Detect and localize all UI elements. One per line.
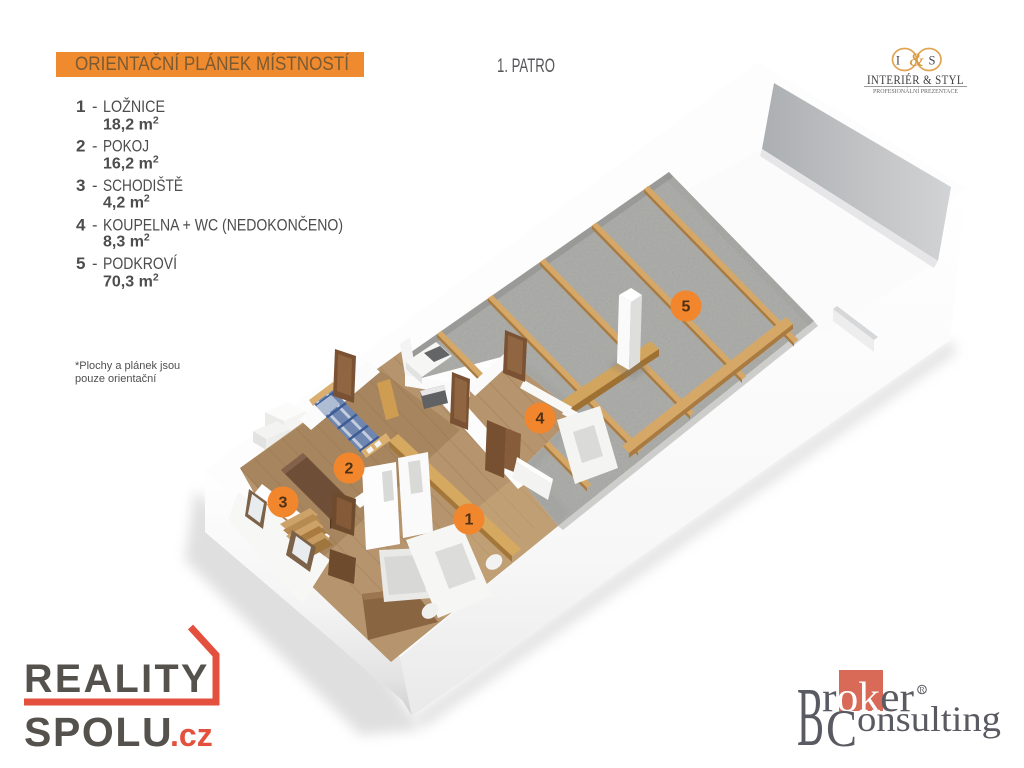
svg-text:-: - (92, 138, 98, 156)
svg-text:2: 2 (76, 137, 85, 156)
svg-text:-: - (92, 255, 98, 273)
svg-text:70,3 m2: 70,3 m2 (103, 272, 159, 291)
svg-text:PODKROVÍ: PODKROVÍ (103, 254, 177, 273)
svg-text:KOUPELNA + WC (NEDOKONČENO): KOUPELNA + WC (NEDOKONČENO) (103, 216, 343, 235)
svg-text:onsulting: onsulting (857, 699, 1001, 739)
svg-text:INTERIÉR & STYL: INTERIÉR & STYL (867, 73, 964, 87)
svg-text:R: R (919, 686, 925, 695)
svg-text:5: 5 (76, 254, 85, 273)
svg-text:-: - (92, 98, 98, 116)
svg-text:-: - (92, 177, 98, 195)
svg-text:.cz: .cz (170, 717, 213, 753)
svg-text:I: I (896, 54, 900, 68)
svg-text:-: - (92, 217, 98, 235)
svg-text:4: 4 (76, 216, 86, 235)
svg-text:pouze orientační: pouze orientační (75, 373, 156, 385)
svg-text:4: 4 (536, 411, 545, 428)
svg-text:&: & (909, 50, 924, 71)
svg-text:3: 3 (279, 495, 288, 512)
svg-text:1: 1 (465, 512, 474, 529)
svg-text:1: 1 (76, 97, 85, 116)
svg-text:S: S (929, 54, 936, 68)
svg-text:SPOLU: SPOLU (24, 709, 173, 755)
svg-text:REALITY: REALITY (24, 657, 210, 701)
svg-text:LOŽNICE: LOŽNICE (103, 97, 165, 116)
svg-text:ORIENTAČNÍ PLÁNEK MÍSTNOSTÍ: ORIENTAČNÍ PLÁNEK MÍSTNOSTÍ (75, 53, 350, 75)
svg-text:3: 3 (76, 176, 85, 195)
svg-text:2: 2 (345, 461, 354, 478)
svg-text:5: 5 (682, 299, 691, 316)
svg-text:B: B (797, 671, 824, 764)
svg-text:PROFESIONÁLNÍ PREZENTACE: PROFESIONÁLNÍ PREZENTACE (873, 87, 958, 95)
svg-text:18,2 m2: 18,2 m2 (103, 115, 159, 134)
svg-text:1. PATRO: 1. PATRO (497, 55, 555, 77)
svg-text:8,3 m2: 8,3 m2 (103, 232, 150, 251)
svg-text:C: C (826, 700, 857, 758)
svg-text:POKOJ: POKOJ (103, 138, 149, 156)
svg-text:16,2 m2: 16,2 m2 (103, 154, 159, 173)
svg-text:4,2 m2: 4,2 m2 (103, 193, 150, 212)
svg-text:*Plochy a plánek jsou: *Plochy a plánek jsou (75, 360, 180, 372)
